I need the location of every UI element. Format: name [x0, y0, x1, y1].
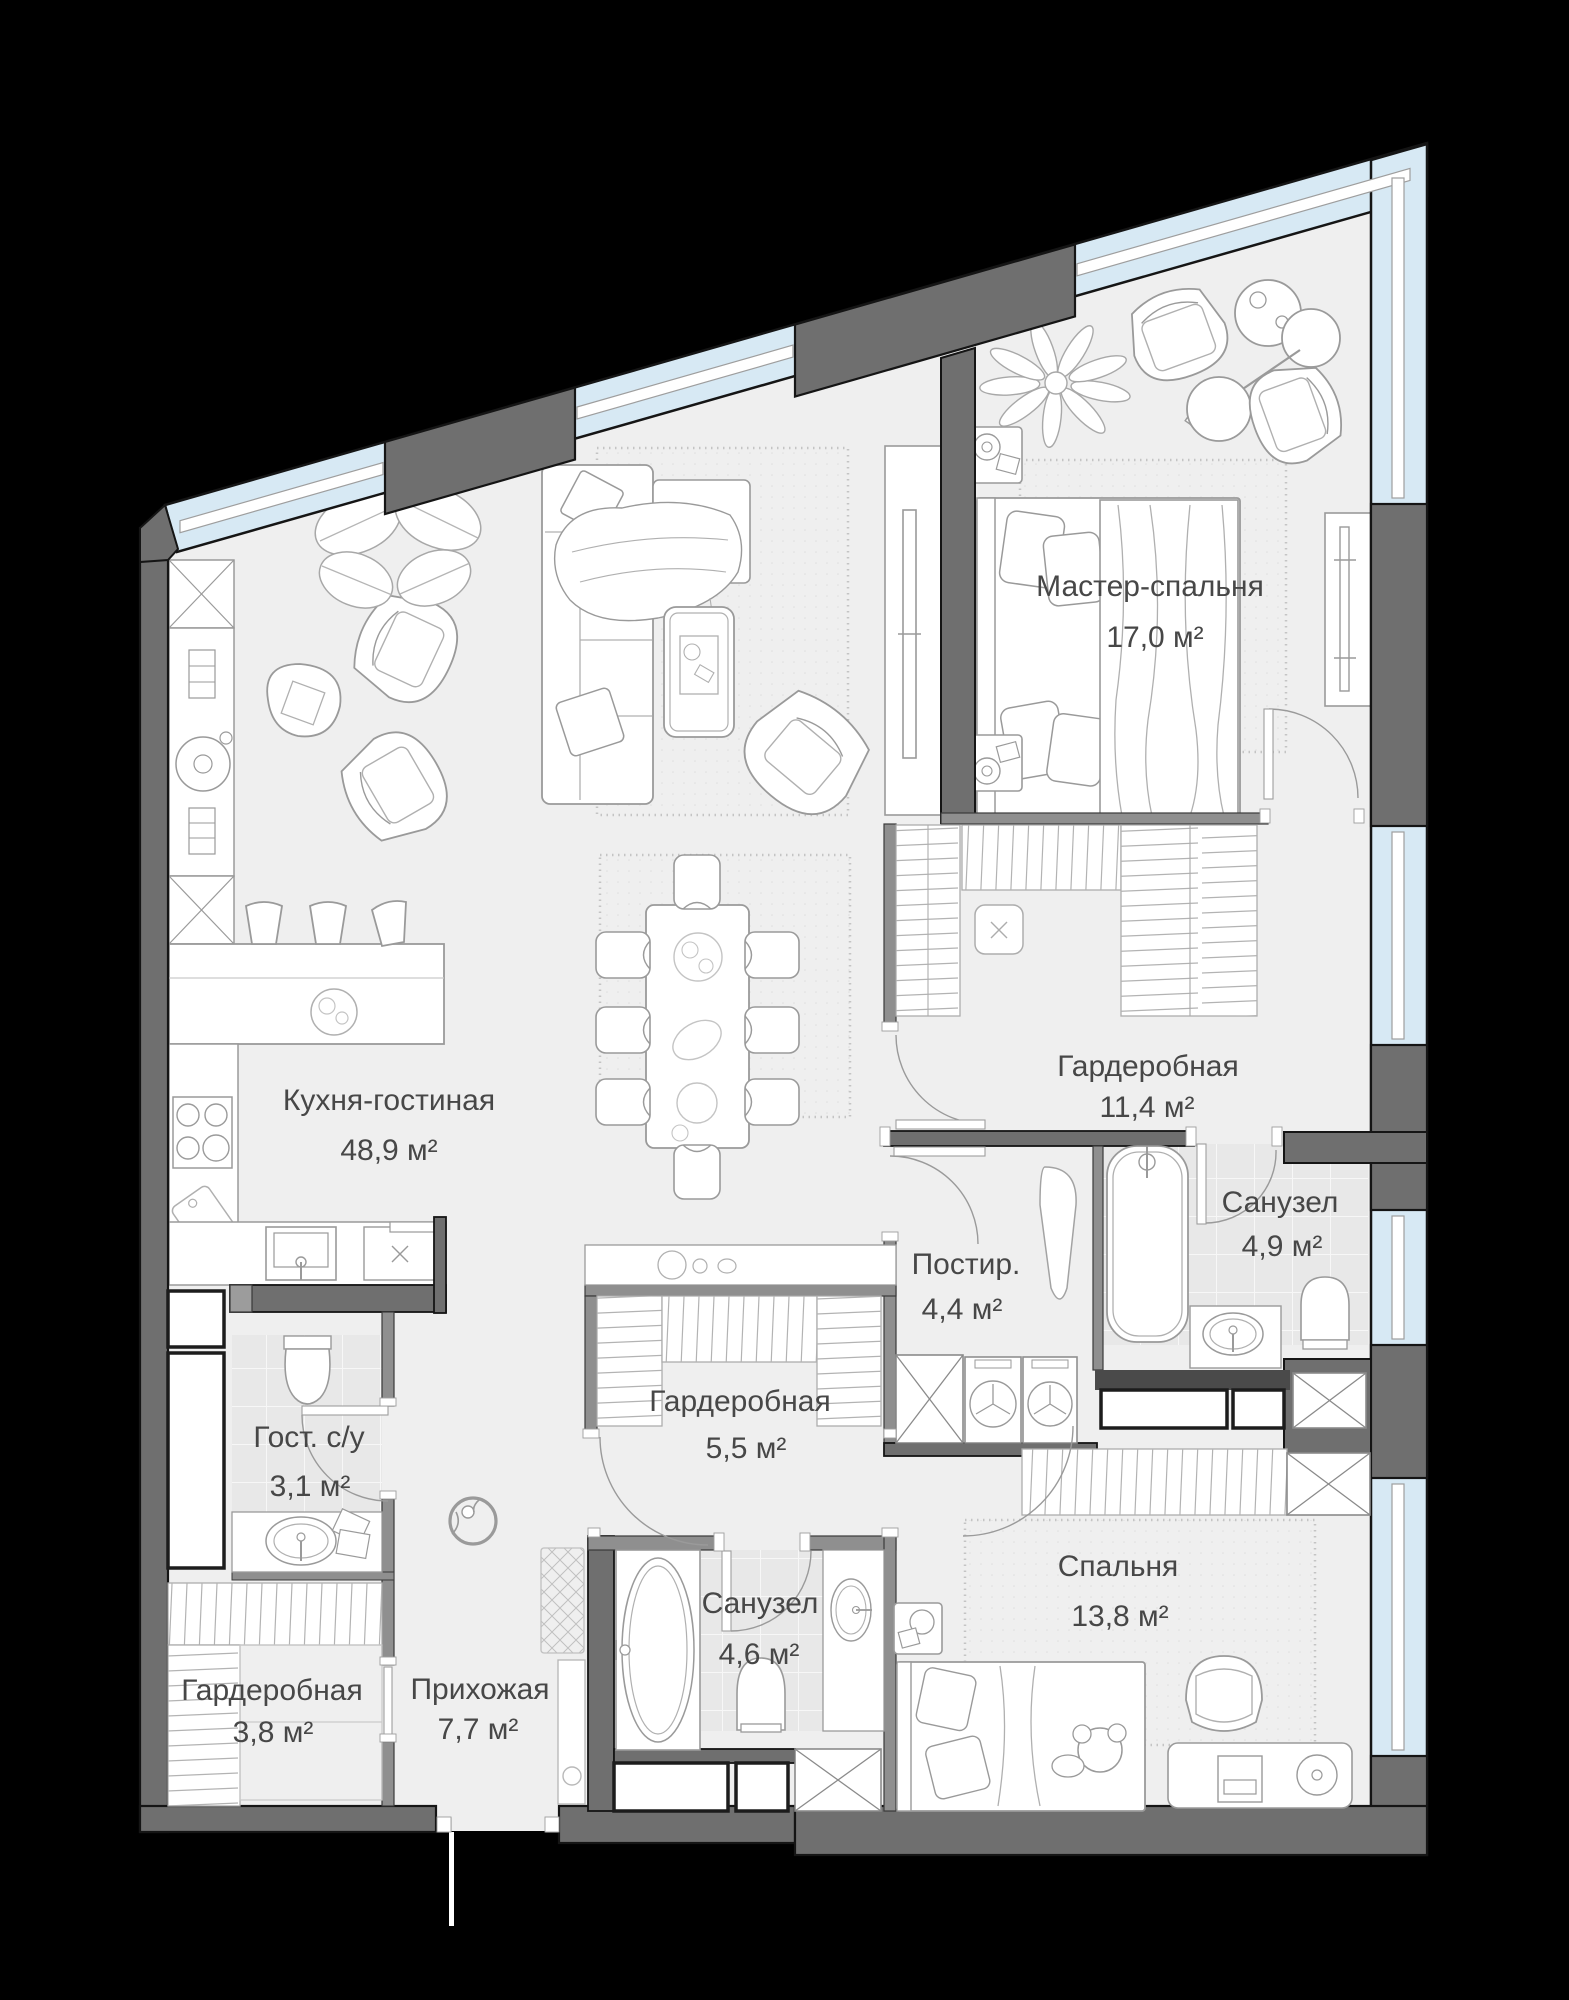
- svg-text:Кухня-гостиная: Кухня-гостиная: [283, 1084, 495, 1117]
- svg-text:17,0 м²: 17,0 м²: [1106, 621, 1203, 654]
- svg-text:3,8 м²: 3,8 м²: [233, 1716, 314, 1749]
- svg-text:4,9 м²: 4,9 м²: [1242, 1230, 1323, 1263]
- svg-text:Прихожая: Прихожая: [410, 1673, 549, 1706]
- svg-text:Санузел: Санузел: [702, 1587, 819, 1620]
- svg-text:11,4 м²: 11,4 м²: [1099, 1091, 1194, 1124]
- svg-text:Постир.: Постир.: [912, 1248, 1021, 1281]
- svg-text:Мастер-спальня: Мастер-спальня: [1036, 570, 1264, 603]
- svg-text:Гардеробная: Гардеробная: [1057, 1050, 1238, 1083]
- svg-text:5,5 м²: 5,5 м²: [706, 1432, 787, 1465]
- svg-text:48,9 м²: 48,9 м²: [340, 1134, 437, 1167]
- svg-text:7,7 м²: 7,7 м²: [438, 1713, 519, 1746]
- svg-text:Гост. с/у: Гост. с/у: [253, 1421, 364, 1454]
- svg-text:4,4 м²: 4,4 м²: [922, 1293, 1003, 1326]
- svg-text:3,1 м²: 3,1 м²: [270, 1470, 351, 1503]
- svg-text:4,6 м²: 4,6 м²: [719, 1638, 800, 1671]
- svg-text:13,8 м²: 13,8 м²: [1071, 1600, 1168, 1633]
- svg-text:Спальня: Спальня: [1058, 1550, 1179, 1583]
- svg-text:Гардеробная: Гардеробная: [649, 1385, 830, 1418]
- svg-text:Санузел: Санузел: [1222, 1186, 1339, 1219]
- svg-text:Гардеробная: Гардеробная: [181, 1674, 362, 1707]
